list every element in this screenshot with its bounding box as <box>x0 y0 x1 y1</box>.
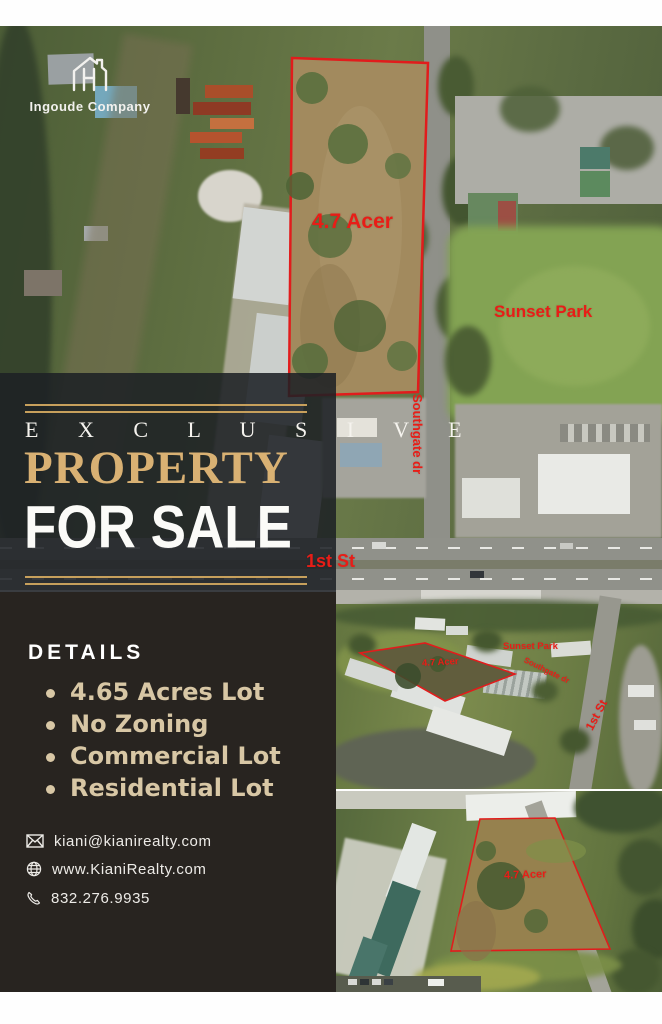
list-item: No Zoning <box>0 708 281 740</box>
bullet-dot <box>46 689 55 698</box>
hero-subtitle: FOR SALE <box>24 493 324 563</box>
house-logo-icon <box>67 54 113 92</box>
park-label-oblique-1: Sunset Park <box>503 641 558 652</box>
park-label-main: Sunset Park <box>494 302 592 322</box>
list-item: Residential Lot <box>0 772 281 804</box>
detail-item-text: 4.65 Acres Lot <box>70 678 264 706</box>
hero-title: PROPERTY <box>24 441 324 495</box>
street-label-southgate: Southgate dr <box>410 394 425 494</box>
detail-item-text: Residential Lot <box>70 774 274 802</box>
list-item: 4.65 Acres Lot <box>0 676 281 708</box>
property-outline-oblique-1 <box>336 590 662 789</box>
property-outline-oblique-2 <box>336 791 662 992</box>
acreage-label-main: 4.7 Acer <box>312 210 393 234</box>
bullet-dot <box>46 753 55 762</box>
globe-icon <box>26 861 42 877</box>
flyer-page: 4.7 Acer Sunset Park Southgate dr 1st St… <box>0 0 662 1024</box>
bullet-dot <box>46 785 55 794</box>
bottom-margin-strip <box>0 992 662 1024</box>
list-item: Commercial Lot <box>0 740 281 772</box>
bullet-dot <box>46 721 55 730</box>
gold-divider-top <box>25 404 307 413</box>
hero-panel: E X C L U S I V E PROPERTY FOR SALE <box>0 373 336 592</box>
email-icon <box>26 834 44 848</box>
contact-phone: 832.276.9935 <box>51 890 150 907</box>
details-panel: DETAILS 4.65 Acres Lot No Zoning Commerc… <box>0 592 336 992</box>
logo: Ingoude Company <box>20 54 160 114</box>
contact-website: www.KianiRealty.com <box>52 861 207 878</box>
top-margin-strip <box>0 0 662 26</box>
gold-divider-bottom <box>25 576 307 585</box>
contact-email: kiani@kianirealty.com <box>54 833 212 850</box>
acreage-label-oblique-2: 4.7 Acer <box>504 868 547 881</box>
contact-website-row: www.KianiRealty.com <box>26 860 207 882</box>
hero-eyebrow: E X C L U S I V E <box>25 417 313 443</box>
detail-item-text: No Zoning <box>70 710 208 738</box>
detail-item-text: Commercial Lot <box>70 742 281 770</box>
contact-phone-row: 832.276.9935 <box>26 889 150 911</box>
street-label-1st-st: 1st St <box>306 551 355 572</box>
logo-company-name: Ingoude Company <box>20 99 160 114</box>
contact-email-row: kiani@kianirealty.com <box>26 832 212 854</box>
details-list: 4.65 Acres Lot No Zoning Commercial Lot … <box>0 676 281 804</box>
aerial-photo-oblique-2: 4.7 Acer <box>336 791 662 992</box>
details-heading: DETAILS <box>28 641 144 665</box>
phone-icon <box>26 891 41 906</box>
aerial-photo-oblique-1: 4.7 Acer Sunset Park Southgate dr 1st St <box>336 590 662 789</box>
acreage-label-oblique-1: 4.7 Acer <box>422 656 459 669</box>
